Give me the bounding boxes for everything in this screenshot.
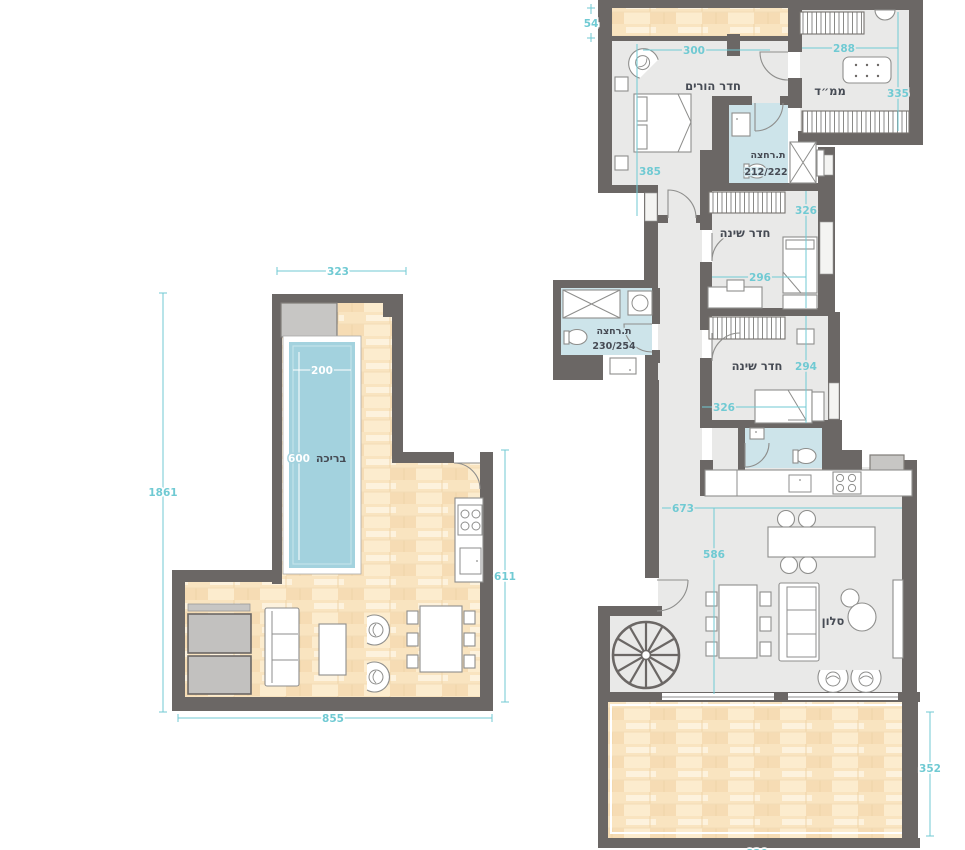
dim-living-height: 586	[703, 549, 725, 561]
deck-sofa	[265, 608, 299, 686]
deck-dining-set	[407, 606, 475, 672]
pool-label: בריכה	[316, 452, 347, 465]
dim-mamad-height: 335	[887, 88, 909, 100]
closet	[800, 12, 864, 34]
toilet	[567, 330, 587, 345]
dim-right: 611	[494, 571, 516, 583]
side-table	[848, 603, 876, 631]
spiral-staircase	[613, 622, 679, 688]
dim-bedroom2-width: 326	[713, 402, 735, 414]
mamad-label: ממ״ד	[814, 84, 846, 98]
floor-plan-canvas: 200 600 בריכה 323 1861	[0, 0, 965, 850]
sink	[610, 358, 636, 374]
outdoor-kitchen	[455, 498, 483, 582]
bath1-size: 212/222	[744, 167, 787, 178]
dim-bottom: 855	[322, 713, 344, 725]
dim-top: 323	[327, 266, 349, 278]
window	[829, 383, 839, 419]
dim-strip: 54	[584, 4, 599, 42]
toilet	[796, 449, 816, 464]
dim-master-width: 300	[683, 45, 705, 57]
sink	[750, 428, 764, 439]
svg-text:54: 54	[584, 18, 599, 30]
closet	[802, 111, 909, 133]
floor-plan-svg: 200 600 בריכה 323 1861	[0, 0, 965, 850]
top-deck-strip	[612, 8, 788, 36]
bath2-label: ת.רחצה	[596, 326, 631, 337]
dim-side: 1861	[148, 487, 177, 499]
closet	[709, 317, 785, 339]
dim-living-width: 673	[672, 503, 694, 515]
pool-width-dim: 200	[311, 365, 333, 377]
living-label: סלון	[822, 614, 845, 628]
deck-coffee-table	[319, 624, 346, 675]
dim-bedroom1-height: 326	[795, 205, 817, 217]
dim-mamad-width: 288	[833, 43, 855, 55]
pool: 200 600 בריכה	[283, 336, 361, 574]
window	[645, 193, 657, 221]
dim-terrace-height: 352	[919, 763, 941, 775]
bedroom2-label: חדר שינה	[732, 359, 783, 373]
ac-unit	[870, 455, 904, 471]
right-plan-apartment: חדר הורים 300 385 54 ממ״ד 288 335 ת.רחצה…	[553, 0, 941, 850]
sofa	[779, 583, 819, 661]
dim-master-height: 385	[639, 166, 661, 178]
closet	[709, 192, 785, 213]
window	[820, 222, 833, 274]
nightstand	[615, 156, 628, 170]
dining-table	[719, 585, 757, 658]
bath2-size: 230/254	[592, 341, 636, 352]
dim-bedroom1-width: 296	[749, 272, 771, 284]
nightstand	[615, 77, 628, 91]
tv-unit	[893, 580, 903, 658]
desk-chair	[727, 280, 744, 291]
bedroom1-label: חדר שינה	[720, 226, 771, 240]
mamad-table	[843, 57, 891, 83]
pool-length-dim: 600	[288, 453, 310, 465]
dim-bedroom2-height: 294	[795, 361, 817, 373]
bath1-label: ת.רחצה	[750, 150, 785, 161]
deck-storage-box	[281, 303, 337, 337]
left-plan-roof-deck: 200 600 בריכה 323 1861	[148, 266, 516, 725]
terrace-floor	[608, 702, 917, 838]
sink	[732, 113, 750, 136]
island-table	[768, 527, 875, 557]
sun-loungers	[188, 604, 251, 694]
master-label: חדר הורים	[685, 79, 741, 93]
